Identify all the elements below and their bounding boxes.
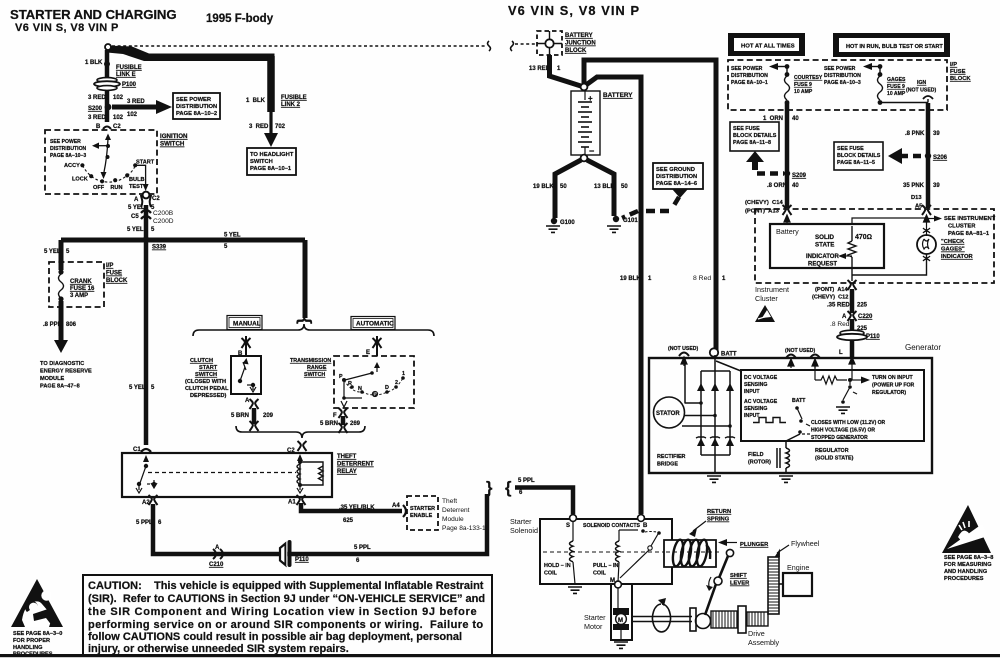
svg-text:C5: C5 bbox=[131, 214, 139, 220]
svg-text:START: START bbox=[136, 160, 155, 166]
svg-text:BRIDGE: BRIDGE bbox=[657, 462, 678, 468]
svg-text:Module: Module bbox=[442, 516, 464, 523]
svg-text:3 AMP: 3 AMP bbox=[70, 293, 88, 299]
svg-text:(SOLID STATE): (SOLID STATE) bbox=[815, 456, 854, 462]
svg-text:PLUNGER: PLUNGER bbox=[740, 542, 769, 548]
svg-text:RELAY: RELAY bbox=[337, 469, 357, 475]
svg-text:(POWER UP FOR: (POWER UP FOR bbox=[872, 383, 915, 389]
svg-text:TRANSMISSION: TRANSMISSION bbox=[290, 358, 331, 364]
svg-text:TURN ON INPUT: TURN ON INPUT bbox=[872, 375, 913, 381]
svg-text:1 BLK: 1 BLK bbox=[85, 60, 103, 66]
svg-text:DEPRESSED): DEPRESSED) bbox=[190, 393, 227, 399]
svg-text:AC VOLTAGE: AC VOLTAGE bbox=[744, 399, 778, 405]
svg-text:A: A bbox=[842, 314, 847, 320]
svg-text:FUSIBLE: FUSIBLE bbox=[116, 65, 142, 71]
svg-text:DISTRIBUTION: DISTRIBUTION bbox=[176, 104, 217, 110]
svg-text:COURTESY: COURTESY bbox=[794, 75, 823, 81]
svg-text:(CHEVY) C12: (CHEVY) C12 bbox=[812, 295, 848, 301]
svg-text:Page 8a-133-1: Page 8a-133-1 bbox=[442, 525, 486, 532]
svg-text:470Ω: 470Ω bbox=[855, 234, 872, 241]
svg-text:F: F bbox=[333, 413, 337, 419]
svg-text:225: 225 bbox=[857, 303, 868, 309]
svg-text:N: N bbox=[358, 386, 362, 392]
svg-text:ENERGY RESERVE: ENERGY RESERVE bbox=[40, 369, 92, 375]
svg-text:(NOT USED): (NOT USED) bbox=[785, 348, 816, 354]
svg-text:CRANK: CRANK bbox=[70, 279, 92, 285]
svg-text:3 RED: 3 RED bbox=[88, 115, 106, 121]
svg-text:SWITCH: SWITCH bbox=[250, 159, 273, 165]
svg-text:.8 ORN: .8 ORN bbox=[767, 183, 787, 189]
svg-text:V6 VIN S, V8 VIN P: V6 VIN S, V8 VIN P bbox=[15, 22, 119, 34]
svg-text:FUSIBLE: FUSIBLE bbox=[281, 95, 307, 101]
svg-text:LEVER: LEVER bbox=[730, 581, 750, 587]
svg-text:Instrument: Instrument bbox=[755, 285, 789, 294]
svg-text:RANGE: RANGE bbox=[307, 365, 327, 371]
svg-text:{: { bbox=[296, 318, 314, 325]
svg-text:COIL: COIL bbox=[593, 571, 607, 577]
svg-text:INPUT: INPUT bbox=[744, 413, 760, 419]
svg-text:BLOCK: BLOCK bbox=[106, 278, 128, 284]
svg-text:209: 209 bbox=[263, 413, 274, 419]
svg-text:B: B bbox=[643, 523, 648, 529]
svg-text:L: L bbox=[839, 350, 843, 356]
svg-text:2: 2 bbox=[395, 380, 398, 386]
svg-text:3 RED: 3 RED bbox=[88, 95, 106, 101]
svg-text:OFF: OFF bbox=[93, 185, 105, 191]
svg-text:HIGH VOLTAGE (16.5V) OR: HIGH VOLTAGE (16.5V) OR bbox=[811, 428, 875, 434]
svg-text:CLUTCH: CLUTCH bbox=[190, 358, 213, 364]
svg-text:A: A bbox=[245, 398, 250, 404]
svg-text:STATOR: STATOR bbox=[656, 411, 680, 417]
svg-text:{: { bbox=[505, 479, 512, 497]
svg-text:CLUSTER: CLUSTER bbox=[948, 224, 976, 230]
svg-text:Cluster: Cluster bbox=[755, 294, 778, 303]
svg-text:5 YEL: 5 YEL bbox=[129, 385, 146, 391]
svg-text:.8 PNK: .8 PNK bbox=[905, 131, 925, 137]
svg-text:the SIR Component and Wiring L: the SIR Component and Wiring Location vi… bbox=[88, 606, 477, 618]
svg-text:STATE: STATE bbox=[815, 242, 834, 249]
svg-text:S200: S200 bbox=[88, 106, 103, 112]
svg-text:SEE POWER: SEE POWER bbox=[50, 139, 81, 145]
svg-text:C200D: C200D bbox=[153, 218, 174, 225]
svg-text:BLOCK DETAILS: BLOCK DETAILS bbox=[733, 133, 777, 139]
svg-text:INDICATOR: INDICATOR bbox=[941, 254, 973, 260]
svg-text:−: − bbox=[589, 146, 594, 156]
svg-text:PAGE 8A–10–1: PAGE 8A–10–1 bbox=[250, 166, 292, 172]
svg-text:STARTER AND CHARGING: STARTER AND CHARGING bbox=[10, 7, 177, 22]
svg-text:LINK 2: LINK 2 bbox=[281, 102, 301, 108]
svg-text:PROCEDURES: PROCEDURES bbox=[944, 576, 984, 582]
svg-text:102: 102 bbox=[127, 112, 138, 118]
svg-text:5 YEL: 5 YEL bbox=[128, 205, 145, 211]
svg-text:COIL: COIL bbox=[544, 571, 558, 577]
svg-text:FUSE 9: FUSE 9 bbox=[794, 82, 812, 88]
svg-text:A: A bbox=[134, 197, 139, 203]
svg-text:SEE GROUND: SEE GROUND bbox=[656, 167, 695, 173]
svg-text:RETURN: RETURN bbox=[707, 509, 731, 515]
svg-text:SEE POWER: SEE POWER bbox=[176, 97, 212, 103]
svg-text:13 BLK: 13 BLK bbox=[594, 184, 615, 190]
svg-text:DC VOLTAGE: DC VOLTAGE bbox=[744, 375, 778, 381]
svg-text:TO DIAGNOSTIC: TO DIAGNOSTIC bbox=[40, 361, 84, 367]
svg-text:BLOCK: BLOCK bbox=[950, 76, 971, 82]
svg-text:START: START bbox=[199, 365, 218, 371]
svg-text:GAGES": GAGES" bbox=[941, 247, 965, 253]
svg-text:40: 40 bbox=[792, 183, 799, 189]
svg-text:13 RED: 13 RED bbox=[529, 66, 551, 72]
svg-text:PAGE 8A–11–5: PAGE 8A–11–5 bbox=[837, 160, 875, 166]
svg-text:806: 806 bbox=[66, 322, 77, 328]
svg-text:M: M bbox=[618, 618, 623, 624]
svg-text:50: 50 bbox=[560, 184, 567, 190]
svg-text:5 PPL: 5 PPL bbox=[518, 478, 535, 484]
svg-text:10 AMP: 10 AMP bbox=[794, 89, 813, 95]
svg-text:BATTERY: BATTERY bbox=[565, 33, 593, 39]
svg-text:SEE POWER: SEE POWER bbox=[824, 66, 856, 72]
svg-text:3 RED: 3 RED bbox=[127, 99, 145, 105]
svg-text:5 PPL: 5 PPL bbox=[354, 545, 371, 551]
svg-text:G100: G100 bbox=[560, 220, 575, 226]
svg-text:D: D bbox=[385, 385, 389, 391]
svg-text:5 YEL: 5 YEL bbox=[127, 227, 144, 233]
svg-text:SWITCH: SWITCH bbox=[160, 141, 185, 148]
svg-text:PAGE 8A–10–3: PAGE 8A–10–3 bbox=[50, 153, 86, 159]
svg-text:ACCY: ACCY bbox=[64, 163, 80, 169]
svg-text:REQUEST: REQUEST bbox=[808, 262, 837, 268]
svg-text:PAGE 8A–14–6: PAGE 8A–14–6 bbox=[656, 181, 698, 187]
svg-text:Starter: Starter bbox=[510, 517, 532, 526]
svg-text:Solenoid: Solenoid bbox=[510, 526, 538, 535]
svg-text:P110: P110 bbox=[295, 557, 309, 563]
svg-text:STARTER: STARTER bbox=[410, 506, 435, 512]
svg-text:D13: D13 bbox=[911, 195, 922, 201]
svg-text:STOPPED GENERATOR: STOPPED GENERATOR bbox=[811, 435, 868, 441]
svg-text:S209: S209 bbox=[792, 173, 807, 179]
svg-text:R: R bbox=[348, 381, 352, 387]
svg-text:C210: C210 bbox=[209, 562, 224, 568]
svg-text:5 PPL: 5 PPL bbox=[136, 520, 153, 526]
svg-text:FUSE 16: FUSE 16 bbox=[70, 286, 95, 292]
svg-text:FUSE: FUSE bbox=[950, 69, 966, 75]
svg-text:BATT: BATT bbox=[792, 398, 806, 404]
svg-text:8 Red: 8 Red bbox=[693, 275, 711, 282]
svg-text:.8 PPL: .8 PPL bbox=[43, 322, 62, 328]
svg-text:19 BLK: 19 BLK bbox=[620, 276, 641, 282]
svg-text:"CHECK: "CHECK bbox=[941, 239, 965, 245]
svg-text:1995 F-body: 1995 F-body bbox=[206, 13, 274, 25]
svg-text:IGNITION: IGNITION bbox=[160, 133, 188, 140]
svg-text:1 BLK: 1 BLK bbox=[246, 98, 266, 104]
svg-text:102: 102 bbox=[113, 95, 124, 101]
svg-text:Engine: Engine bbox=[787, 563, 809, 572]
svg-text:RUN: RUN bbox=[110, 185, 122, 191]
svg-text:5 BRN: 5 BRN bbox=[231, 413, 249, 419]
svg-text:HOLD – IN: HOLD – IN bbox=[544, 563, 571, 569]
svg-text:CAUTION: This vehicle is eq: CAUTION: This vehicle is equipped with S… bbox=[88, 580, 484, 592]
svg-text:C220: C220 bbox=[858, 314, 873, 320]
svg-text:MODULE: MODULE bbox=[40, 376, 65, 382]
svg-text:19 BLK: 19 BLK bbox=[533, 184, 554, 190]
svg-text:5 YEL: 5 YEL bbox=[44, 249, 61, 255]
svg-text:A: A bbox=[215, 545, 220, 551]
svg-text:.35 YEL/BLK: .35 YEL/BLK bbox=[339, 505, 375, 511]
svg-text:DISTRIBUTION: DISTRIBUTION bbox=[824, 73, 861, 79]
svg-text:LINK E: LINK E bbox=[116, 72, 136, 78]
svg-text:LOCK: LOCK bbox=[72, 177, 88, 183]
svg-text:SOLENOID CONTACTS: SOLENOID CONTACTS bbox=[583, 523, 641, 529]
svg-text:Battery: Battery bbox=[776, 227, 799, 236]
svg-text:(NOT USED): (NOT USED) bbox=[668, 346, 699, 352]
svg-text:DISTRIBUTION: DISTRIBUTION bbox=[731, 73, 768, 79]
svg-text:1: 1 bbox=[402, 371, 405, 377]
svg-text:CLUTCH PEDAL: CLUTCH PEDAL bbox=[185, 386, 229, 392]
svg-text:I/P: I/P bbox=[106, 263, 113, 269]
svg-text:V6 VIN S, V8 VIN P: V6 VIN S, V8 VIN P bbox=[508, 3, 640, 18]
svg-text:follow CAUTIONS could result i: follow CAUTIONS could result in possible… bbox=[88, 631, 462, 643]
svg-text:S206: S206 bbox=[933, 155, 948, 161]
svg-text:Assembly: Assembly bbox=[748, 638, 780, 647]
svg-text:PAGE 8A–47–8: PAGE 8A–47–8 bbox=[40, 384, 80, 390]
svg-text:P110: P110 bbox=[866, 334, 880, 340]
svg-text:FUSE 9: FUSE 9 bbox=[887, 84, 905, 90]
svg-text:3 RED 702: 3 RED 702 bbox=[249, 124, 286, 130]
svg-text:ENABLE: ENABLE bbox=[410, 513, 433, 519]
svg-text:40: 40 bbox=[792, 116, 799, 122]
svg-text:Deterrent: Deterrent bbox=[442, 507, 470, 514]
svg-text:SEE FUSE: SEE FUSE bbox=[733, 126, 760, 132]
svg-text:102: 102 bbox=[113, 115, 124, 121]
svg-text:39: 39 bbox=[933, 183, 940, 189]
svg-text:SEE INSTRUMENT: SEE INSTRUMENT bbox=[944, 216, 996, 222]
svg-text:SEE POWER: SEE POWER bbox=[731, 66, 763, 72]
svg-text:PAGE 8A–10–3: PAGE 8A–10–3 bbox=[824, 80, 861, 86]
svg-text:Theft: Theft bbox=[442, 498, 457, 505]
svg-text:BLOCK: BLOCK bbox=[565, 48, 587, 54]
svg-text:SOLID: SOLID bbox=[815, 234, 834, 241]
svg-text:DISTRIBUTION: DISTRIBUTION bbox=[50, 146, 87, 152]
svg-text:39: 39 bbox=[933, 131, 940, 137]
svg-text:(NOT USED): (NOT USED) bbox=[906, 88, 937, 94]
svg-text:PAGE 8A–81–1: PAGE 8A–81–1 bbox=[948, 231, 990, 237]
svg-text:35 PNK: 35 PNK bbox=[903, 183, 925, 189]
svg-text:HOT AT ALL TIMES: HOT AT ALL TIMES bbox=[741, 44, 795, 50]
svg-text:AUTOMATIC: AUTOMATIC bbox=[356, 321, 394, 328]
svg-text:BATTERY: BATTERY bbox=[603, 92, 633, 99]
svg-text:CLOSES WITH LOW (11.2V) OR: CLOSES WITH LOW (11.2V) OR bbox=[811, 420, 886, 426]
svg-text:SWITCH: SWITCH bbox=[195, 372, 217, 378]
svg-text:PAGE 8A–10–2: PAGE 8A–10–2 bbox=[176, 111, 217, 117]
svg-text:SEE PAGE 8A–3–8: SEE PAGE 8A–3–8 bbox=[944, 555, 993, 561]
svg-text:PAGE 8A–11–8: PAGE 8A–11–8 bbox=[733, 140, 771, 146]
svg-text:SEE FUSE: SEE FUSE bbox=[837, 146, 864, 152]
svg-text:FUSE: FUSE bbox=[106, 271, 122, 277]
svg-text:269: 269 bbox=[350, 421, 361, 427]
svg-text:(ROTOR): (ROTOR) bbox=[748, 460, 771, 466]
svg-text:10 AMP: 10 AMP bbox=[887, 91, 906, 97]
svg-text:(CLOSED WITH: (CLOSED WITH bbox=[185, 379, 226, 385]
svg-text:INDICATOR: INDICATOR bbox=[806, 254, 839, 260]
svg-text:50: 50 bbox=[621, 184, 628, 190]
svg-text:SENSING: SENSING bbox=[744, 406, 767, 412]
svg-text:HANDLING: HANDLING bbox=[13, 645, 43, 651]
svg-text:Motor: Motor bbox=[584, 622, 603, 631]
svg-text:FIELD: FIELD bbox=[748, 452, 764, 458]
svg-text:INPUT: INPUT bbox=[744, 389, 760, 395]
svg-text:SHIFT: SHIFT bbox=[730, 573, 747, 579]
svg-text:S339: S339 bbox=[152, 245, 167, 251]
svg-text:S: S bbox=[566, 523, 570, 529]
svg-text:M: M bbox=[610, 578, 615, 584]
svg-text:1 ORN: 1 ORN bbox=[763, 116, 783, 122]
svg-text:MANUAL: MANUAL bbox=[233, 321, 261, 328]
svg-text:PULL – IN: PULL – IN bbox=[593, 563, 618, 569]
svg-text:FOR MEASURING: FOR MEASURING bbox=[944, 562, 992, 568]
svg-text:BULB: BULB bbox=[129, 177, 145, 183]
svg-text:(PONT) A14: (PONT) A14 bbox=[815, 287, 849, 293]
svg-text:}: } bbox=[486, 479, 493, 497]
svg-text:TO HEADLIGHT: TO HEADLIGHT bbox=[250, 152, 294, 158]
svg-text:HOT IN RUN, BULB TEST OR START: HOT IN RUN, BULB TEST OR START bbox=[846, 44, 943, 50]
svg-text:A1: A1 bbox=[288, 500, 296, 506]
svg-text:(SIR). Refer to CAUTIONS in S: (SIR). Refer to CAUTIONS in Section 9J u… bbox=[88, 593, 485, 605]
svg-text:RECTIFIER: RECTIFIER bbox=[657, 454, 686, 460]
svg-text:P: P bbox=[339, 374, 343, 380]
svg-text:PAGE 8A–10–1: PAGE 8A–10–1 bbox=[731, 80, 768, 86]
svg-text:FOR PROPER: FOR PROPER bbox=[13, 638, 50, 644]
svg-text:Generator: Generator bbox=[905, 343, 941, 352]
svg-text:.35 RED: .35 RED bbox=[827, 303, 850, 309]
svg-text:SPRING: SPRING bbox=[707, 517, 730, 523]
svg-text:SENSING: SENSING bbox=[744, 382, 767, 388]
svg-text:625: 625 bbox=[343, 518, 354, 524]
svg-text:DISTRIBUTION: DISTRIBUTION bbox=[656, 174, 697, 180]
svg-text:5 BRN: 5 BRN bbox=[320, 421, 338, 427]
svg-text:BLOCK DETAILS: BLOCK DETAILS bbox=[837, 153, 881, 159]
svg-text:REGULATOR: REGULATOR bbox=[815, 448, 849, 454]
svg-text:.8 Red: .8 Red bbox=[830, 321, 850, 328]
svg-text:Starter: Starter bbox=[584, 613, 606, 622]
svg-text:(CHEVY) C14: (CHEVY) C14 bbox=[745, 200, 783, 206]
svg-text:GAGES: GAGES bbox=[887, 77, 906, 83]
svg-text:JUNCTION: JUNCTION bbox=[565, 41, 596, 47]
svg-text:Flywheel: Flywheel bbox=[791, 539, 820, 548]
svg-text:P100: P100 bbox=[122, 82, 137, 88]
svg-text:I/P: I/P bbox=[950, 62, 957, 68]
svg-text:DETERRENT: DETERRENT bbox=[337, 462, 374, 468]
svg-text:C200B: C200B bbox=[153, 210, 174, 217]
svg-text:SEE PAGE 8A–3–0: SEE PAGE 8A–3–0 bbox=[13, 631, 62, 637]
svg-text:injury, or otherwise unneeded: injury, or otherwise unneeded SIR system… bbox=[88, 643, 349, 655]
svg-text:performing service on or aroun: performing service on or around SIR comp… bbox=[88, 619, 484, 631]
svg-text:REGULATOR): REGULATOR) bbox=[872, 390, 906, 396]
svg-text:A4: A4 bbox=[392, 503, 400, 509]
svg-text:C2: C2 bbox=[152, 196, 160, 202]
svg-text:AND HANDLING: AND HANDLING bbox=[944, 569, 987, 575]
svg-text:5 YEL: 5 YEL bbox=[224, 233, 241, 239]
svg-text:SWITCH: SWITCH bbox=[304, 372, 325, 378]
svg-text:D: D bbox=[373, 393, 377, 399]
svg-text:Drive: Drive bbox=[748, 629, 765, 638]
svg-text:THEFT: THEFT bbox=[337, 454, 357, 460]
svg-text:TEST: TEST bbox=[129, 184, 144, 190]
svg-text:IGN: IGN bbox=[917, 80, 926, 86]
svg-text:BATT: BATT bbox=[721, 352, 737, 358]
